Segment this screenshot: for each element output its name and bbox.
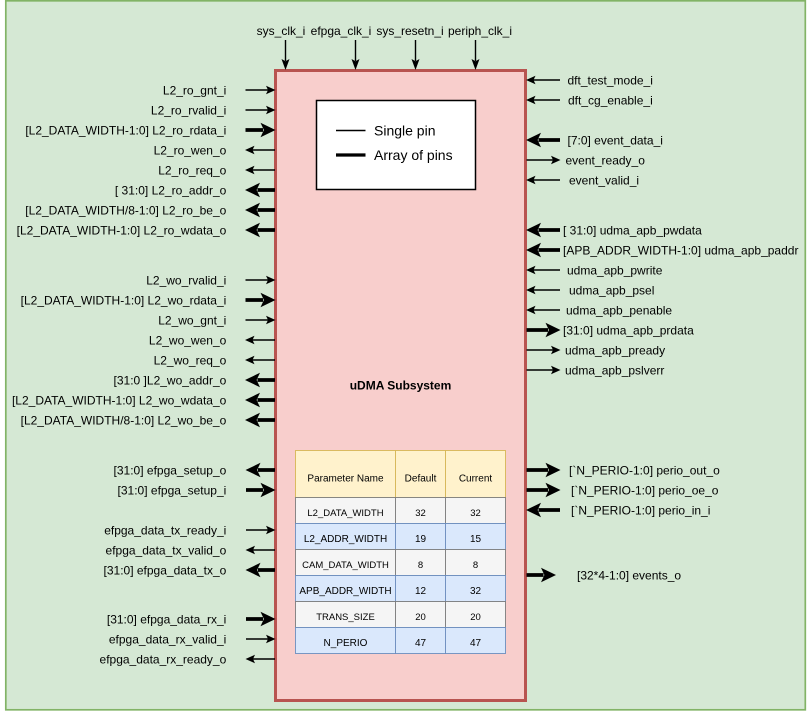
svg-text:[ 31:0] udma_apb_pwdata: [ 31:0] udma_apb_pwdata bbox=[563, 223, 702, 237]
svg-text:periph_clk_i: periph_clk_i bbox=[448, 24, 512, 38]
svg-text:L2_ro_wen_o: L2_ro_wen_o bbox=[154, 143, 227, 157]
svg-text:[31:0] efpga_setup_o: [31:0] efpga_setup_o bbox=[114, 463, 227, 477]
svg-text:8: 8 bbox=[473, 560, 478, 571]
svg-text:N_PERIO: N_PERIO bbox=[324, 638, 368, 649]
svg-text:[31:0] udma_apb_prdata: [31:0] udma_apb_prdata bbox=[563, 323, 694, 337]
svg-text:[31:0] efpga_data_rx_i: [31:0] efpga_data_rx_i bbox=[107, 612, 226, 626]
svg-text:L2_wo_gnt_i: L2_wo_gnt_i bbox=[158, 313, 226, 327]
svg-text:[L2_DATA_WIDTH/8-1:0] L2_ro_be: [L2_DATA_WIDTH/8-1:0] L2_ro_be_o bbox=[25, 203, 226, 217]
svg-text:sys_resetn_i: sys_resetn_i bbox=[376, 24, 443, 38]
svg-text:uDMA Subsystem: uDMA Subsystem bbox=[350, 379, 452, 393]
svg-text:Single pin: Single pin bbox=[374, 123, 436, 139]
svg-text:udma_apb_pwrite: udma_apb_pwrite bbox=[567, 263, 663, 277]
svg-text:L2_ADDR_WIDTH: L2_ADDR_WIDTH bbox=[304, 534, 387, 545]
svg-text:[31:0 ]L2_wo_addr_o: [31:0 ]L2_wo_addr_o bbox=[114, 373, 227, 387]
svg-text:[`N_PERIO-1:0] perio_out_o: [`N_PERIO-1:0] perio_out_o bbox=[569, 463, 720, 477]
svg-text:efpga_clk_i: efpga_clk_i bbox=[311, 24, 372, 38]
svg-text:udma_apb_pslverr: udma_apb_pslverr bbox=[565, 363, 664, 377]
svg-text:L2_DATA_WIDTH: L2_DATA_WIDTH bbox=[307, 508, 383, 519]
svg-text:[L2_DATA_WIDTH-1:0] L2_wo_wdat: [L2_DATA_WIDTH-1:0] L2_wo_wdata_o bbox=[12, 393, 227, 407]
svg-text:[L2_DATA_WIDTH-1:0] L2_ro_wdat: [L2_DATA_WIDTH-1:0] L2_ro_wdata_o bbox=[17, 223, 227, 237]
svg-text:[L2_DATA_WIDTH-1:0] L2_ro_rdat: [L2_DATA_WIDTH-1:0] L2_ro_rdata_i bbox=[25, 123, 226, 137]
svg-text:L2_wo_rvalid_i: L2_wo_rvalid_i bbox=[146, 273, 226, 287]
svg-text:15: 15 bbox=[470, 534, 482, 545]
svg-text:32: 32 bbox=[470, 586, 482, 597]
svg-text:dft_test_mode_i: dft_test_mode_i bbox=[568, 73, 653, 87]
svg-text:Parameter Name: Parameter Name bbox=[307, 473, 384, 484]
svg-text:19: 19 bbox=[415, 534, 427, 545]
svg-text:[31:0] efpga_setup_i: [31:0] efpga_setup_i bbox=[118, 483, 227, 497]
svg-text:47: 47 bbox=[470, 638, 482, 649]
svg-text:20: 20 bbox=[415, 612, 426, 623]
svg-text:8: 8 bbox=[418, 560, 423, 571]
svg-text:32: 32 bbox=[415, 508, 426, 519]
svg-text:udma_apb_penable: udma_apb_penable bbox=[566, 303, 672, 317]
svg-text:[`N_PERIO-1:0] perio_oe_o: [`N_PERIO-1:0] perio_oe_o bbox=[571, 483, 719, 497]
svg-text:[APB_ADDR_WIDTH-1:0] udma_apb_: [APB_ADDR_WIDTH-1:0] udma_apb_paddr bbox=[563, 243, 798, 257]
svg-text:32: 32 bbox=[470, 508, 481, 519]
svg-text:event_valid_i: event_valid_i bbox=[569, 173, 639, 187]
svg-text:CAM_DATA_WIDTH: CAM_DATA_WIDTH bbox=[302, 560, 389, 571]
svg-text:efpga_data_rx_ready_o: efpga_data_rx_ready_o bbox=[100, 652, 227, 666]
svg-text:L2_ro_rvalid_i: L2_ro_rvalid_i bbox=[151, 103, 226, 117]
svg-text:L2_wo_req_o: L2_wo_req_o bbox=[154, 353, 227, 367]
svg-text:Default: Default bbox=[405, 473, 437, 484]
svg-text:[`N_PERIO-1:0] perio_in_i: [`N_PERIO-1:0] perio_in_i bbox=[571, 503, 710, 517]
svg-text:Array of pins: Array of pins bbox=[374, 147, 453, 163]
svg-text:APB_ADDR_WIDTH: APB_ADDR_WIDTH bbox=[299, 586, 391, 597]
svg-text:[31:0] efpga_data_tx_o: [31:0] efpga_data_tx_o bbox=[104, 563, 227, 577]
svg-text:47: 47 bbox=[415, 638, 427, 649]
svg-text:12: 12 bbox=[415, 586, 427, 597]
svg-text:efpga_data_tx_valid_o: efpga_data_tx_valid_o bbox=[106, 543, 227, 557]
svg-text:TRANS_SIZE: TRANS_SIZE bbox=[316, 612, 375, 623]
svg-text:[32*4-1:0] events_o: [32*4-1:0] events_o bbox=[577, 568, 681, 582]
svg-text:[L2_DATA_WIDTH/8-1:0] L2_wo_be: [L2_DATA_WIDTH/8-1:0] L2_wo_be_o bbox=[21, 413, 227, 427]
svg-text:[7:0] event_data_i: [7:0] event_data_i bbox=[568, 133, 663, 147]
svg-text:[ 31:0] L2_ro_addr_o: [ 31:0] L2_ro_addr_o bbox=[115, 183, 227, 197]
svg-text:Current: Current bbox=[459, 473, 493, 484]
svg-text:L2_wo_wen_o: L2_wo_wen_o bbox=[149, 333, 227, 347]
svg-text:sys_clk_i: sys_clk_i bbox=[257, 24, 306, 38]
svg-text:[L2_DATA_WIDTH-1:0] L2_wo_rdat: [L2_DATA_WIDTH-1:0] L2_wo_rdata_i bbox=[21, 293, 227, 307]
svg-text:L2_ro_req_o: L2_ro_req_o bbox=[158, 163, 226, 177]
svg-text:udma_apb_pready: udma_apb_pready bbox=[565, 343, 665, 357]
svg-text:udma_apb_psel: udma_apb_psel bbox=[569, 283, 654, 297]
svg-text:dft_cg_enable_i: dft_cg_enable_i bbox=[568, 93, 653, 107]
svg-text:20: 20 bbox=[470, 612, 481, 623]
svg-text:L2_ro_gnt_i: L2_ro_gnt_i bbox=[163, 83, 226, 97]
svg-text:efpga_data_rx_valid_i: efpga_data_rx_valid_i bbox=[109, 632, 226, 646]
svg-text:efpga_data_tx_ready_i: efpga_data_tx_ready_i bbox=[104, 523, 226, 537]
svg-text:event_ready_o: event_ready_o bbox=[566, 153, 646, 167]
